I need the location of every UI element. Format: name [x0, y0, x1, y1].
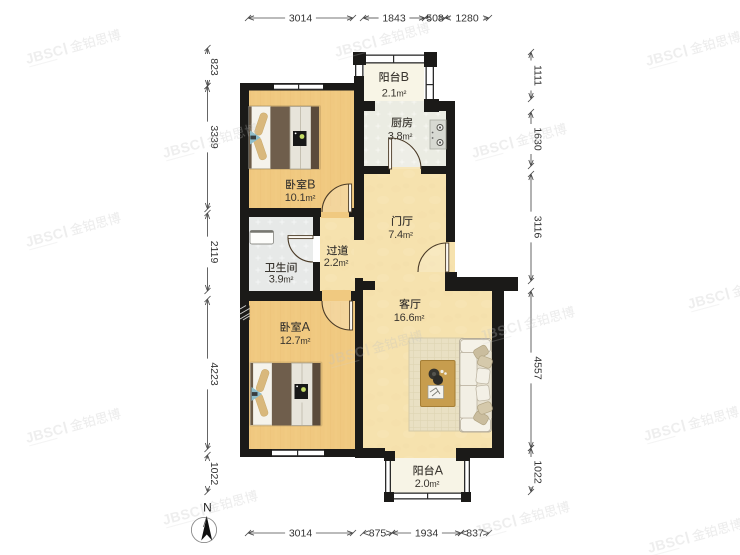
svg-text:1843: 1843: [382, 13, 406, 25]
svg-text:1280: 1280: [455, 13, 479, 25]
svg-text:4557: 4557: [532, 356, 544, 380]
svg-text:3.8m²: 3.8m²: [388, 131, 413, 143]
svg-text:3116: 3116: [532, 216, 544, 239]
svg-text:A: A: [302, 320, 311, 334]
svg-text:823: 823: [208, 58, 220, 76]
svg-text:2.2m²: 2.2m²: [324, 257, 349, 269]
svg-text:3014: 3014: [289, 13, 313, 25]
svg-text:10.1m²: 10.1m²: [285, 192, 316, 204]
svg-text:2.1m²: 2.1m²: [382, 88, 407, 100]
svg-text:1111: 1111: [532, 65, 544, 86]
svg-text:1022: 1022: [532, 460, 544, 484]
svg-text:508: 508: [426, 13, 444, 25]
svg-text:2.0m²: 2.0m²: [415, 478, 440, 490]
svg-text:875: 875: [369, 528, 387, 540]
svg-text:A: A: [435, 464, 444, 478]
svg-text:B: B: [307, 178, 315, 192]
svg-text:B: B: [401, 70, 409, 84]
svg-text:2119: 2119: [208, 241, 220, 264]
svg-text:12.7m²: 12.7m²: [280, 335, 311, 347]
svg-text:4223: 4223: [208, 362, 220, 386]
svg-text:3014: 3014: [289, 528, 313, 540]
svg-text:7.4m²: 7.4m²: [388, 229, 413, 241]
svg-text:16.6m²: 16.6m²: [394, 312, 425, 324]
svg-text:1630: 1630: [532, 127, 544, 151]
svg-text:1022: 1022: [208, 462, 220, 486]
svg-text:3.9m²: 3.9m²: [269, 274, 294, 286]
svg-text:1934: 1934: [415, 528, 439, 540]
